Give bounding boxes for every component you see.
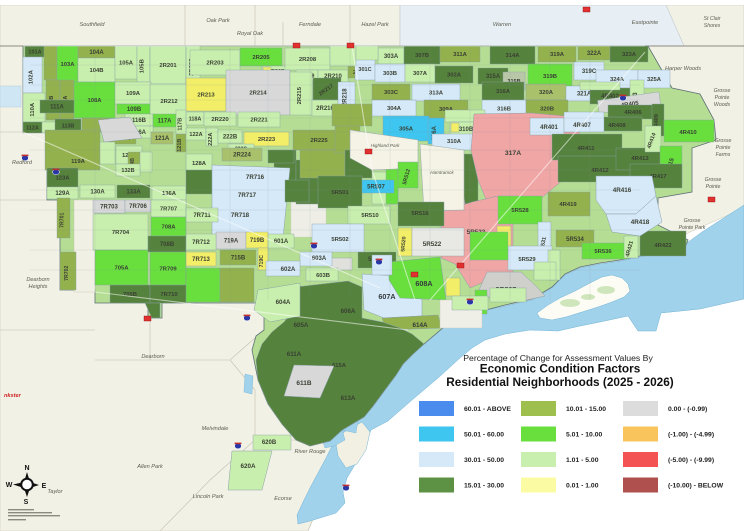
svg-text:2R203: 2R203 bbox=[206, 61, 224, 67]
svg-text:Shores: Shores bbox=[704, 23, 721, 29]
svg-text:606A: 606A bbox=[341, 308, 356, 315]
svg-text:119A: 119A bbox=[71, 159, 86, 165]
svg-text:4R418: 4R418 bbox=[631, 219, 650, 226]
svg-text:317A: 317A bbox=[505, 150, 521, 157]
svg-text:5.01 - 10.00: 5.01 - 10.00 bbox=[566, 432, 602, 439]
svg-text:117B: 117B bbox=[178, 118, 184, 131]
svg-text:303A: 303A bbox=[384, 54, 399, 60]
svg-text:4R410: 4R410 bbox=[679, 130, 697, 136]
svg-text:2R214: 2R214 bbox=[249, 91, 267, 97]
svg-text:S: S bbox=[24, 499, 29, 506]
svg-text:E: E bbox=[42, 483, 47, 490]
svg-text:2R201: 2R201 bbox=[159, 63, 177, 69]
svg-text:River Rouge: River Rouge bbox=[294, 449, 325, 455]
svg-text:Melvindale: Melvindale bbox=[202, 426, 229, 432]
svg-text:7R701: 7R701 bbox=[60, 212, 66, 227]
svg-text:0.00 - (-0.99): 0.00 - (-0.99) bbox=[668, 406, 707, 413]
svg-text:(-10.00) - BELOW: (-10.00) - BELOW bbox=[668, 483, 724, 490]
svg-text:5R502: 5R502 bbox=[331, 237, 349, 243]
svg-text:133A: 133A bbox=[126, 190, 141, 196]
svg-text:111A: 111A bbox=[50, 105, 64, 111]
svg-text:4R406: 4R406 bbox=[624, 110, 642, 116]
svg-text:Grosse: Grosse bbox=[705, 177, 722, 183]
svg-text:302A: 302A bbox=[447, 73, 462, 79]
svg-text:613A: 613A bbox=[341, 395, 356, 402]
svg-text:Eastpointe: Eastpointe bbox=[632, 20, 658, 26]
svg-text:2R221: 2R221 bbox=[250, 118, 268, 124]
svg-text:7R710: 7R710 bbox=[160, 292, 178, 298]
svg-text:222B: 222B bbox=[223, 135, 238, 141]
svg-text:Economic Condition Factors: Economic Condition Factors bbox=[480, 362, 641, 376]
svg-text:320B: 320B bbox=[540, 107, 554, 113]
svg-text:Pointe: Pointe bbox=[716, 145, 731, 151]
svg-text:130A: 130A bbox=[90, 190, 105, 196]
svg-text:603B: 603B bbox=[316, 273, 330, 279]
svg-text:Warren: Warren bbox=[493, 22, 511, 28]
svg-text:708B: 708B bbox=[160, 242, 175, 248]
svg-text:4R413: 4R413 bbox=[631, 156, 649, 162]
svg-text:Allen Park: Allen Park bbox=[136, 464, 164, 470]
svg-text:7R709: 7R709 bbox=[159, 267, 177, 273]
svg-text:Grosse: Grosse bbox=[684, 218, 701, 224]
svg-text:2R213: 2R213 bbox=[197, 93, 215, 99]
svg-text:4R412: 4R412 bbox=[591, 168, 609, 174]
svg-text:Highland Park: Highland Park bbox=[371, 143, 401, 148]
svg-text:0.01 - 1.00: 0.01 - 1.00 bbox=[566, 483, 599, 490]
svg-text:105A: 105A bbox=[119, 61, 134, 67]
svg-text:Hamtramck: Hamtramck bbox=[430, 170, 454, 175]
svg-text:4R422: 4R422 bbox=[654, 243, 672, 249]
svg-text:Lincoln Park: Lincoln Park bbox=[193, 494, 225, 500]
svg-text:323A: 323A bbox=[622, 52, 637, 58]
svg-text:715B: 715B bbox=[231, 256, 246, 262]
svg-text:2R218: 2R218 bbox=[343, 88, 349, 106]
svg-text:322A: 322A bbox=[587, 51, 602, 57]
svg-text:301C: 301C bbox=[358, 67, 371, 73]
svg-text:104A: 104A bbox=[89, 50, 104, 56]
svg-text:304A: 304A bbox=[387, 106, 402, 112]
svg-text:Pointe Park: Pointe Park bbox=[679, 225, 706, 231]
svg-text:128A: 128A bbox=[192, 161, 207, 167]
svg-text:N: N bbox=[24, 465, 29, 472]
svg-text:118A: 118A bbox=[189, 117, 202, 123]
svg-text:109B: 109B bbox=[127, 107, 142, 113]
svg-text:316B: 316B bbox=[497, 107, 511, 113]
svg-text:Ferndale: Ferndale bbox=[299, 22, 321, 28]
svg-text:30.01 - 50.00: 30.01 - 50.00 bbox=[464, 457, 504, 464]
svg-text:611B: 611B bbox=[296, 380, 311, 387]
svg-text:5R516: 5R516 bbox=[411, 211, 429, 217]
svg-text:320A: 320A bbox=[539, 90, 554, 96]
svg-text:W: W bbox=[6, 482, 13, 489]
svg-text:5R510: 5R510 bbox=[361, 213, 379, 219]
svg-text:303C: 303C bbox=[384, 90, 399, 96]
svg-text:620B: 620B bbox=[262, 440, 277, 446]
svg-text:117A: 117A bbox=[157, 119, 172, 125]
svg-text:4R419: 4R419 bbox=[559, 202, 577, 208]
svg-text:315A: 315A bbox=[486, 74, 501, 80]
svg-text:307A: 307A bbox=[413, 71, 428, 77]
svg-text:110A: 110A bbox=[30, 102, 36, 117]
svg-text:Harper Woods: Harper Woods bbox=[665, 66, 701, 72]
svg-text:Residential Neighborhoods (202: Residential Neighborhoods (2025 - 2026) bbox=[446, 375, 674, 389]
svg-text:Oak Park: Oak Park bbox=[206, 18, 231, 24]
svg-text:719A: 719A bbox=[224, 239, 239, 245]
svg-text:2R216: 2R216 bbox=[316, 106, 334, 112]
svg-text:607A: 607A bbox=[378, 292, 395, 301]
svg-text:321A: 321A bbox=[577, 92, 592, 98]
svg-text:311A: 311A bbox=[453, 52, 468, 58]
svg-text:Royal Oak: Royal Oak bbox=[237, 31, 264, 37]
svg-text:4R411: 4R411 bbox=[577, 146, 595, 152]
svg-text:(-5.00) - (-9.99): (-5.00) - (-9.99) bbox=[668, 457, 714, 464]
svg-text:2R205: 2R205 bbox=[252, 55, 270, 61]
svg-text:Dearborn: Dearborn bbox=[141, 354, 164, 360]
svg-text:112A: 112A bbox=[26, 126, 39, 132]
svg-text:314A: 314A bbox=[505, 53, 520, 59]
svg-text:602A: 602A bbox=[281, 266, 296, 273]
svg-text:2R215: 2R215 bbox=[297, 86, 303, 104]
svg-text:121A: 121A bbox=[155, 136, 170, 142]
svg-text:4R416: 4R416 bbox=[613, 187, 632, 194]
svg-text:5R534: 5R534 bbox=[566, 237, 584, 243]
svg-text:611A: 611A bbox=[287, 351, 302, 358]
svg-text:604A: 604A bbox=[276, 299, 291, 306]
svg-text:5R529: 5R529 bbox=[518, 257, 536, 263]
svg-text:104B: 104B bbox=[89, 68, 103, 74]
svg-text:313A: 313A bbox=[429, 91, 444, 97]
svg-text:122A: 122A bbox=[189, 132, 202, 138]
svg-text:Taylor: Taylor bbox=[47, 489, 63, 495]
svg-text:Farms: Farms bbox=[716, 152, 731, 158]
svg-text:10.01 - 15.00: 10.01 - 15.00 bbox=[566, 406, 606, 413]
svg-text:705A: 705A bbox=[114, 266, 129, 272]
svg-text:123A: 123A bbox=[55, 176, 70, 182]
svg-text:2R225: 2R225 bbox=[310, 138, 328, 144]
svg-text:7R704: 7R704 bbox=[112, 230, 130, 236]
svg-text:Grosse: Grosse bbox=[714, 88, 731, 94]
svg-text:60.01 - ABOVE: 60.01 - ABOVE bbox=[464, 406, 511, 413]
svg-text:316A: 316A bbox=[496, 89, 511, 95]
svg-text:7R706: 7R706 bbox=[129, 204, 147, 210]
svg-text:605A: 605A bbox=[294, 322, 309, 329]
svg-text:2R208: 2R208 bbox=[299, 57, 317, 63]
svg-text:614A: 614A bbox=[412, 322, 428, 329]
svg-text:7R716: 7R716 bbox=[246, 174, 265, 181]
svg-text:7R712: 7R712 bbox=[192, 240, 210, 246]
svg-text:Pointe: Pointe bbox=[715, 95, 730, 101]
svg-text:7R702: 7R702 bbox=[64, 265, 70, 280]
svg-text:Hazel Park: Hazel Park bbox=[361, 22, 390, 28]
svg-text:7R713: 7R713 bbox=[192, 257, 210, 263]
svg-text:2R224: 2R224 bbox=[233, 153, 251, 159]
svg-text:102A: 102A bbox=[29, 69, 35, 84]
svg-text:nkster: nkster bbox=[4, 393, 22, 399]
svg-text:719B: 719B bbox=[250, 238, 265, 244]
svg-text:4R401: 4R401 bbox=[540, 125, 558, 131]
svg-text:105B: 105B bbox=[140, 59, 146, 73]
svg-text:(-1.00) - (-4.99): (-1.00) - (-4.99) bbox=[668, 432, 714, 439]
svg-text:4R408: 4R408 bbox=[608, 123, 626, 129]
svg-text:50.01 - 60.00: 50.01 - 60.00 bbox=[464, 432, 504, 439]
svg-text:Woods: Woods bbox=[714, 102, 731, 108]
svg-text:Redford: Redford bbox=[12, 160, 33, 166]
svg-text:319C: 319C bbox=[582, 69, 597, 75]
svg-text:15.01 - 30.00: 15.01 - 30.00 bbox=[464, 483, 504, 490]
svg-text:719C: 719C bbox=[259, 255, 265, 268]
svg-text:307B: 307B bbox=[415, 53, 429, 59]
svg-text:620A: 620A bbox=[240, 463, 256, 470]
svg-text:7R717: 7R717 bbox=[238, 192, 257, 199]
svg-text:310A: 310A bbox=[447, 139, 462, 145]
svg-text:5R528: 5R528 bbox=[511, 208, 529, 214]
svg-text:7R711: 7R711 bbox=[193, 213, 211, 219]
svg-text:Dearborn: Dearborn bbox=[26, 277, 49, 283]
svg-text:222A: 222A bbox=[208, 133, 214, 146]
svg-text:132B: 132B bbox=[121, 168, 134, 174]
svg-text:7R707: 7R707 bbox=[160, 207, 178, 213]
svg-text:109A: 109A bbox=[126, 91, 141, 97]
svg-text:2R223: 2R223 bbox=[258, 137, 276, 143]
svg-text:St Clair: St Clair bbox=[703, 16, 720, 22]
svg-text:5R522: 5R522 bbox=[423, 241, 442, 248]
svg-text:Ecorse: Ecorse bbox=[274, 496, 291, 502]
svg-text:1.01 - 5.00: 1.01 - 5.00 bbox=[566, 457, 599, 464]
svg-text:116B: 116B bbox=[132, 118, 147, 124]
svg-text:129A: 129A bbox=[55, 191, 70, 197]
svg-text:Pointe: Pointe bbox=[706, 184, 721, 190]
svg-text:113B: 113B bbox=[62, 124, 75, 130]
svg-text:7R718: 7R718 bbox=[231, 212, 250, 219]
svg-text:101A: 101A bbox=[28, 50, 41, 56]
svg-text:Heights: Heights bbox=[29, 284, 48, 290]
svg-text:325A: 325A bbox=[647, 77, 662, 83]
svg-text:319A: 319A bbox=[550, 52, 565, 58]
svg-text:Grosse: Grosse bbox=[715, 138, 732, 144]
svg-text:5R501: 5R501 bbox=[331, 190, 349, 196]
svg-text:Southfield: Southfield bbox=[80, 22, 106, 28]
